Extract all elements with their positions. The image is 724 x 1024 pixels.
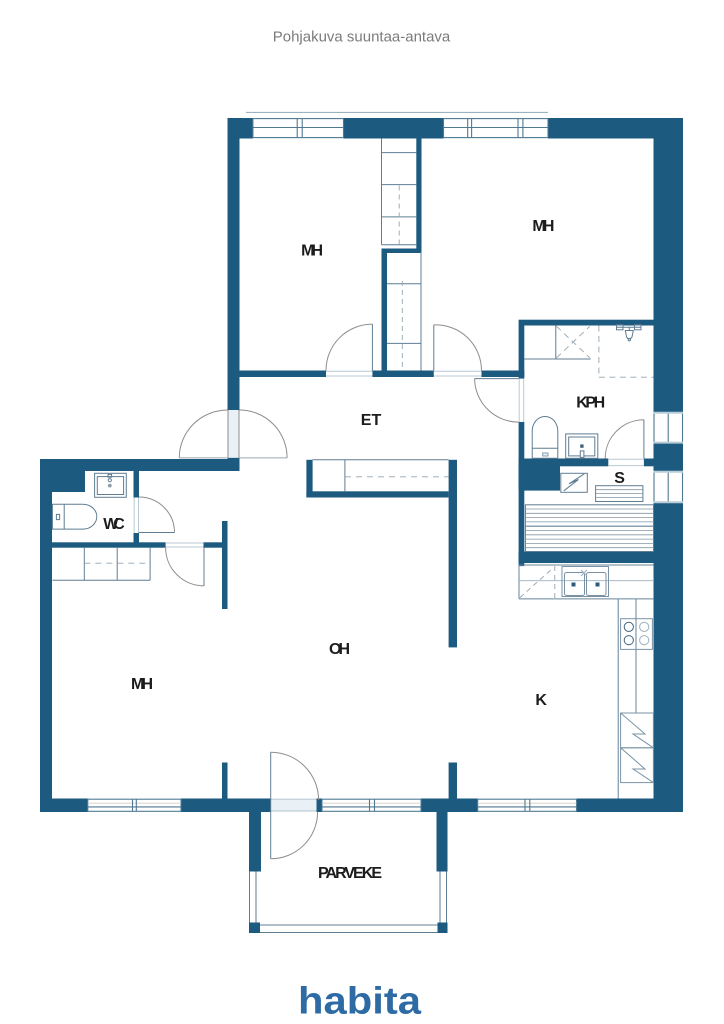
svg-text:MH: MH xyxy=(131,676,153,693)
svg-text:K: K xyxy=(535,692,547,709)
svg-text:OH: OH xyxy=(329,641,350,658)
svg-text:MH: MH xyxy=(532,218,554,235)
svg-text:S: S xyxy=(614,470,625,487)
svg-text:WC: WC xyxy=(103,516,125,533)
svg-text:Pohjakuva suuntaa-antava: Pohjakuva suuntaa-antava xyxy=(273,29,451,46)
svg-text:PARVEKE: PARVEKE xyxy=(318,865,382,882)
svg-text:KPH: KPH xyxy=(576,394,605,411)
svg-text:ET: ET xyxy=(361,412,382,429)
svg-text:MH: MH xyxy=(301,242,323,259)
svg-text:habita: habita xyxy=(298,981,422,1023)
